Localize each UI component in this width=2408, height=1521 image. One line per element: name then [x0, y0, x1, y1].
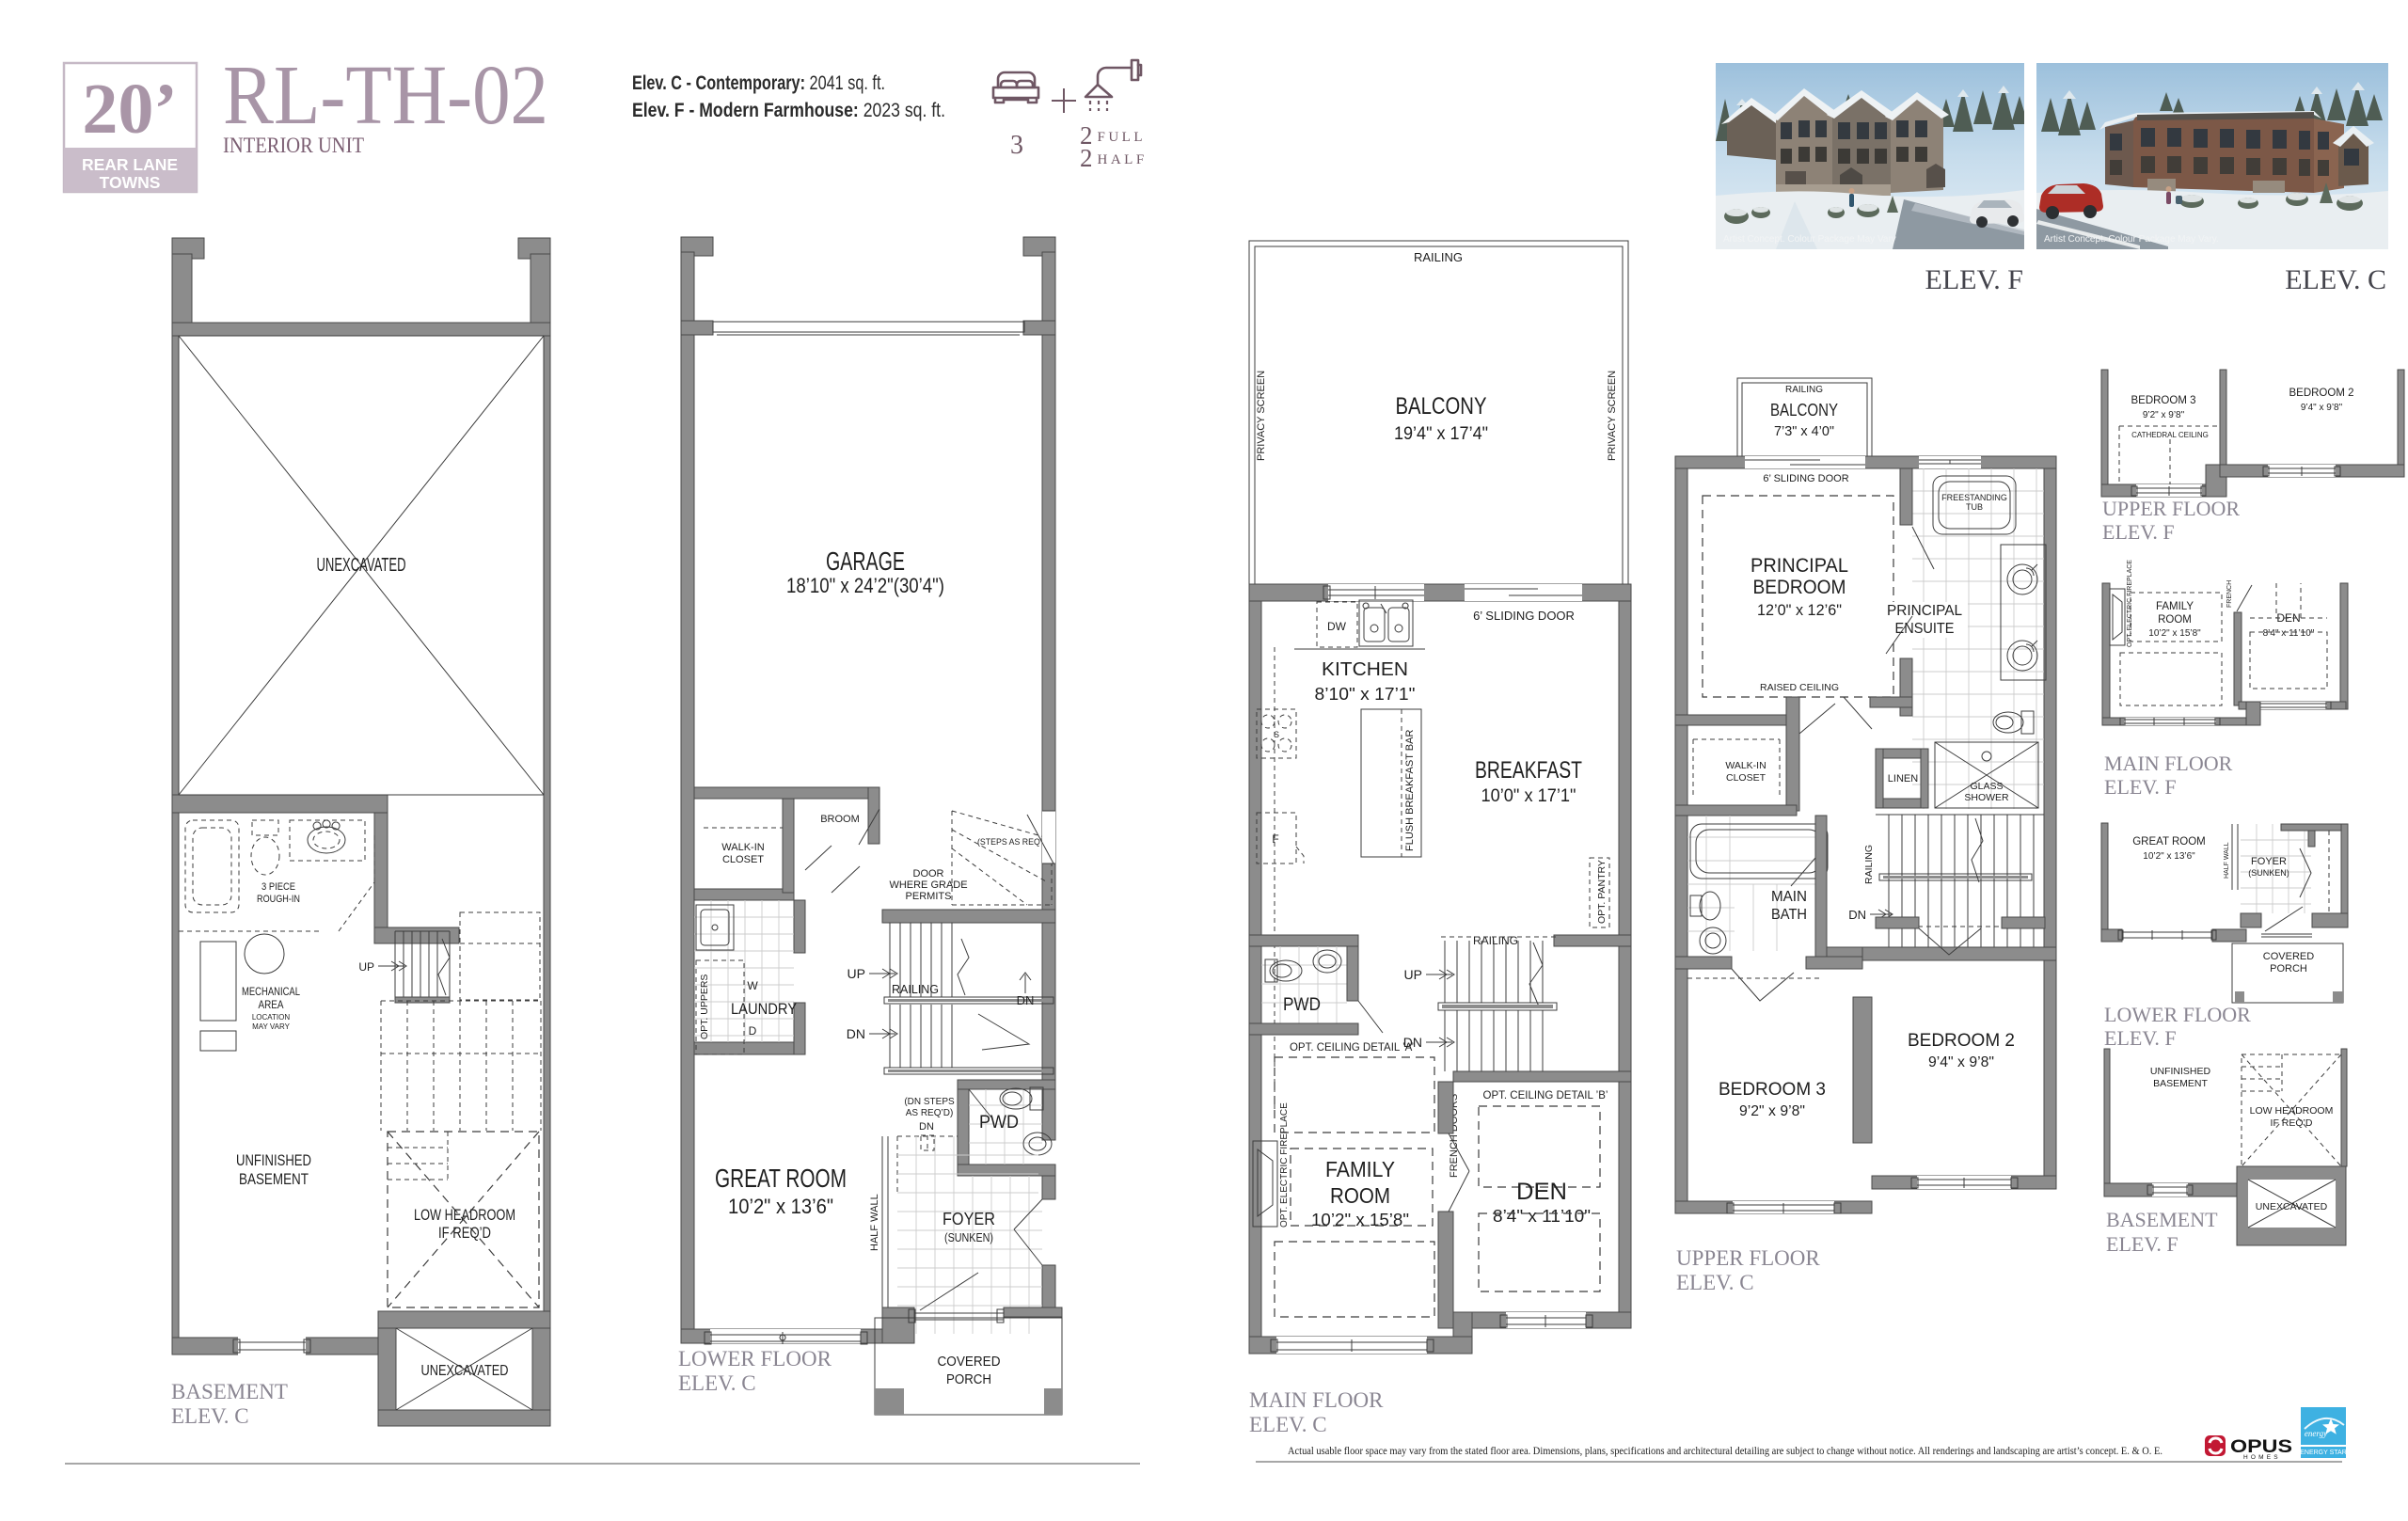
svg-text:FLUSH BREAKFAST BAR: FLUSH BREAKFAST BAR: [1404, 730, 1416, 851]
svg-text:7’3" x 4’0": 7’3" x 4’0": [1774, 423, 1834, 439]
svg-text:LINEN: LINEN: [1888, 773, 1918, 784]
svg-text:BEDROOM 3: BEDROOM 3: [2131, 395, 2195, 406]
svg-text:8’4" x 11’10": 8’4" x 11’10": [2263, 628, 2315, 639]
svg-text:GARAGE: GARAGE: [826, 547, 905, 576]
svg-text:OPT. ELECTRIC FIREPLACE: OPT. ELECTRIC FIREPLACE: [1279, 1102, 1290, 1228]
svg-text:ELEV. C: ELEV. C: [171, 1404, 249, 1428]
svg-text:RAILING: RAILING: [1473, 934, 1518, 947]
svg-text:MAIN: MAIN: [1771, 889, 1807, 905]
svg-text:RAILING: RAILING: [1863, 845, 1875, 884]
svg-text:WALK-IN: WALK-IN: [721, 842, 764, 853]
svg-text:W: W: [747, 979, 758, 992]
svg-text:DN: DN: [1017, 993, 1035, 1007]
svg-text:BASEMENT: BASEMENT: [2153, 1078, 2208, 1089]
svg-text:COVERED: COVERED: [2263, 951, 2314, 962]
svg-text:ELEV. C: ELEV. C: [2285, 264, 2386, 295]
svg-text:6’ SLIDING DOOR: 6’ SLIDING DOOR: [1763, 473, 1848, 484]
svg-text:CLOSET: CLOSET: [722, 854, 764, 865]
svg-text:BROOM: BROOM: [820, 814, 860, 825]
svg-text:ELEV. F: ELEV. F: [2104, 1026, 2177, 1050]
svg-text:FOYER: FOYER: [2251, 856, 2287, 867]
svg-text:BEDROOM 2: BEDROOM 2: [2289, 388, 2353, 399]
svg-text:PWD: PWD: [1283, 995, 1321, 1015]
svg-text:9’2" x 9’8": 9’2" x 9’8": [2143, 410, 2185, 420]
svg-text:ROOM: ROOM: [2158, 614, 2192, 626]
svg-text:HOMES: HOMES: [2243, 1454, 2281, 1461]
svg-text:D: D: [749, 1024, 757, 1038]
svg-text:GREAT ROOM: GREAT ROOM: [2132, 836, 2206, 848]
svg-text:BASEMENT: BASEMENT: [239, 1170, 309, 1188]
svg-text:DEN: DEN: [1516, 1179, 1567, 1205]
svg-text:WALK-IN: WALK-IN: [1725, 760, 1766, 771]
svg-text:18’10" x 24’2"(30’4"): 18’10" x 24’2"(30’4"): [786, 574, 944, 597]
svg-text:PERMITS: PERMITS: [906, 891, 952, 902]
svg-text:ELEV. C: ELEV. C: [1676, 1271, 1754, 1294]
svg-text:REAR LANE: REAR LANE: [82, 155, 178, 174]
svg-text:S: S: [1274, 730, 1279, 739]
svg-text:UNFINISHED: UNFINISHED: [236, 1151, 311, 1169]
svg-text:RAILING: RAILING: [1414, 250, 1463, 264]
svg-text:MAIN FLOOR: MAIN FLOOR: [2104, 752, 2233, 775]
svg-text:PRIVACY SCREEN: PRIVACY SCREEN: [1607, 371, 1618, 461]
svg-text:AS REQ’D): AS REQ’D): [906, 1108, 954, 1118]
svg-text:LOWER FLOOR: LOWER FLOOR: [678, 1347, 832, 1370]
svg-text:BATH: BATH: [1771, 907, 1807, 923]
svg-text:3: 3: [1010, 131, 1023, 160]
svg-text:AREA: AREA: [259, 998, 284, 1011]
svg-text:ROUGH-IN: ROUGH-IN: [257, 894, 300, 905]
svg-text:RAILING: RAILING: [892, 983, 939, 996]
svg-text:(SUNKEN): (SUNKEN): [944, 1231, 993, 1244]
svg-text:energy: energy: [2305, 1429, 2327, 1438]
svg-text:TUB: TUB: [1966, 502, 1983, 512]
svg-text:OPT. UPPERS: OPT. UPPERS: [699, 974, 710, 1039]
svg-text:HALF WALL: HALF WALL: [869, 1194, 880, 1251]
svg-text:ELEV. C: ELEV. C: [1249, 1413, 1327, 1436]
svg-text:OPT. CEILING DETAIL ’A’: OPT. CEILING DETAIL ’A’: [1290, 1042, 1414, 1054]
svg-text:ELEV. F: ELEV. F: [2106, 1232, 2178, 1256]
svg-text:10’2" x 13’6": 10’2" x 13’6": [728, 1195, 833, 1218]
svg-text:12’0" x 12’6": 12’0" x 12’6": [1757, 602, 1842, 619]
svg-text:BEDROOM 2: BEDROOM 2: [1908, 1031, 2015, 1051]
svg-text:RAISED CEILING: RAISED CEILING: [1760, 682, 1839, 693]
svg-text:FRENCH: FRENCH: [2226, 580, 2233, 608]
svg-text:DN: DN: [847, 1026, 865, 1041]
svg-text:OPT. PANTRY: OPT. PANTRY: [1596, 860, 1608, 924]
svg-text:PORCH: PORCH: [946, 1371, 991, 1387]
svg-text:FAMILY: FAMILY: [2156, 601, 2194, 612]
svg-text:UNEXCAVATED: UNEXCAVATED: [421, 1363, 509, 1379]
svg-text:(DN STEPS: (DN STEPS: [904, 1097, 955, 1107]
svg-text:DN: DN: [919, 1121, 934, 1133]
svg-text:COVERED: COVERED: [938, 1354, 1001, 1370]
svg-text:ELEV. F: ELEV. F: [2102, 520, 2175, 544]
svg-text:F: F: [1272, 832, 1278, 846]
svg-text:MAIN FLOOR: MAIN FLOOR: [1249, 1388, 1384, 1412]
svg-text:MAY VARY: MAY VARY: [252, 1022, 291, 1031]
svg-text:RL-TH-02: RL-TH-02: [223, 49, 548, 142]
svg-text:BALCONY: BALCONY: [1770, 401, 1838, 420]
svg-text:IF REQ’D: IF REQ’D: [438, 1224, 491, 1242]
svg-text:10’0" x 17’1": 10’0" x 17’1": [1481, 786, 1576, 806]
svg-text:UNFINISHED: UNFINISHED: [2150, 1066, 2211, 1077]
svg-text:CATHEDRAL CEILING: CATHEDRAL CEILING: [2131, 431, 2209, 439]
svg-text:UP: UP: [358, 960, 374, 974]
svg-text:IF REQ’D: IF REQ’D: [2271, 1117, 2313, 1129]
svg-text:8’10" x 17’1": 8’10" x 17’1": [1315, 685, 1416, 704]
svg-text:20’: 20’: [82, 70, 177, 149]
svg-text:UPPER FLOOR: UPPER FLOOR: [2102, 497, 2240, 520]
svg-text:Actual usable floor space may: Actual usable floor space may vary from …: [1288, 1446, 2162, 1457]
svg-text:WHERE GRADE: WHERE GRADE: [889, 879, 967, 891]
svg-text:Elev. C - Contemporary: 2041 s: Elev. C - Contemporary: 2041 sq. ft.: [632, 72, 885, 94]
svg-text:ELEV. F: ELEV. F: [1925, 264, 2023, 295]
svg-text:10’2" x 15’8": 10’2" x 15’8": [2148, 628, 2201, 639]
svg-text:Artist Concept. Colour Package: Artist Concept. Colour Package May Vary.: [2044, 234, 2219, 245]
svg-text:Artist Concept. Colour Package: Artist Concept. Colour Package May Vary: [1723, 234, 1896, 245]
svg-text:LAUNDRY: LAUNDRY: [731, 1000, 797, 1018]
svg-text:OPT. CEILING DETAIL ’B’: OPT. CEILING DETAIL ’B’: [1483, 1090, 1608, 1101]
svg-text:10’2" x 15’8": 10’2" x 15’8": [1311, 1211, 1409, 1229]
svg-text:MECHANICAL: MECHANICAL: [242, 985, 300, 998]
svg-text:ELEV. F: ELEV. F: [2104, 775, 2177, 799]
svg-text:BALCONY: BALCONY: [1396, 393, 1487, 420]
svg-text:FOYER: FOYER: [943, 1210, 995, 1228]
svg-text:GREAT ROOM: GREAT ROOM: [715, 1164, 847, 1193]
svg-text:UP: UP: [848, 966, 865, 981]
svg-text:PRIVACY SCREEN: PRIVACY SCREEN: [1256, 371, 1267, 461]
svg-text:3 PIECE: 3 PIECE: [261, 881, 295, 893]
svg-text:KITCHEN: KITCHEN: [1322, 659, 1408, 680]
svg-text:9’4" x 9’8": 9’4" x 9’8": [1928, 1054, 1994, 1070]
svg-text:9’2" x 9’8": 9’2" x 9’8": [1739, 1103, 1805, 1119]
svg-text:UPPER FLOOR: UPPER FLOOR: [1676, 1246, 1820, 1270]
svg-text:ROOM: ROOM: [1330, 1183, 1390, 1208]
svg-text:BASEMENT: BASEMENT: [2106, 1208, 2218, 1231]
svg-text:DN: DN: [1848, 908, 1866, 922]
svg-text:LOW HEADROOM: LOW HEADROOM: [2250, 1105, 2334, 1117]
svg-text:PRINCIPAL: PRINCIPAL: [1887, 603, 1962, 619]
svg-text:ELEV. C: ELEV. C: [678, 1371, 756, 1395]
svg-text:BREAKFAST: BREAKFAST: [1475, 757, 1582, 784]
svg-text:PORCH: PORCH: [2270, 963, 2307, 974]
svg-text:19’4" x 17’4": 19’4" x 17’4": [1394, 424, 1488, 444]
svg-text:Elev. F - Modern Farmhouse: 20: Elev. F - Modern Farmhouse: 2023 sq. ft.: [632, 100, 945, 121]
svg-text:(SUNKEN): (SUNKEN): [2248, 868, 2289, 878]
svg-text:9’4" x 9’8": 9’4" x 9’8": [2301, 403, 2343, 413]
svg-text:6’ SLIDING DOOR: 6’ SLIDING DOOR: [1473, 609, 1575, 623]
svg-text:PWD: PWD: [979, 1113, 1019, 1133]
svg-text:GLASS: GLASS: [1970, 781, 2003, 792]
svg-text:UNEXCAVATED: UNEXCAVATED: [2256, 1201, 2328, 1212]
svg-text:PRINCIPAL: PRINCIPAL: [1751, 555, 1848, 577]
svg-text:LOCATION: LOCATION: [252, 1013, 291, 1022]
svg-text:10’2" x 13’6": 10’2" x 13’6": [2143, 851, 2195, 862]
svg-text:TOWNS: TOWNS: [100, 173, 161, 192]
svg-text:ENERGY STAR: ENERGY STAR: [2300, 1450, 2347, 1456]
svg-text:CLOSET: CLOSET: [1726, 772, 1766, 784]
svg-text:RAILING: RAILING: [1785, 385, 1823, 395]
svg-text:INTERIOR UNIT: INTERIOR UNIT: [223, 134, 364, 157]
svg-text:BEDROOM: BEDROOM: [1753, 577, 1846, 598]
svg-text:LOWER FLOOR: LOWER FLOOR: [2104, 1003, 2251, 1026]
svg-text:FAMILY: FAMILY: [1325, 1157, 1395, 1181]
svg-text:BASEMENT: BASEMENT: [171, 1380, 288, 1403]
svg-text:DOOR: DOOR: [913, 868, 944, 879]
svg-text:DW: DW: [1327, 620, 1347, 633]
svg-text:FREESTANDING: FREESTANDING: [1941, 493, 2007, 502]
svg-text:UNEXCAVATED: UNEXCAVATED: [317, 555, 406, 576]
svg-text:8’4" x 11’10": 8’4" x 11’10": [1493, 1207, 1591, 1226]
svg-text:BEDROOM 3: BEDROOM 3: [1719, 1080, 1826, 1100]
svg-text:LOW HEADROOM: LOW HEADROOM: [414, 1206, 515, 1224]
svg-text:SHOWER: SHOWER: [1964, 792, 2009, 803]
svg-text:UP: UP: [1404, 967, 1422, 982]
svg-text:HALF WALL: HALF WALL: [2224, 842, 2230, 879]
